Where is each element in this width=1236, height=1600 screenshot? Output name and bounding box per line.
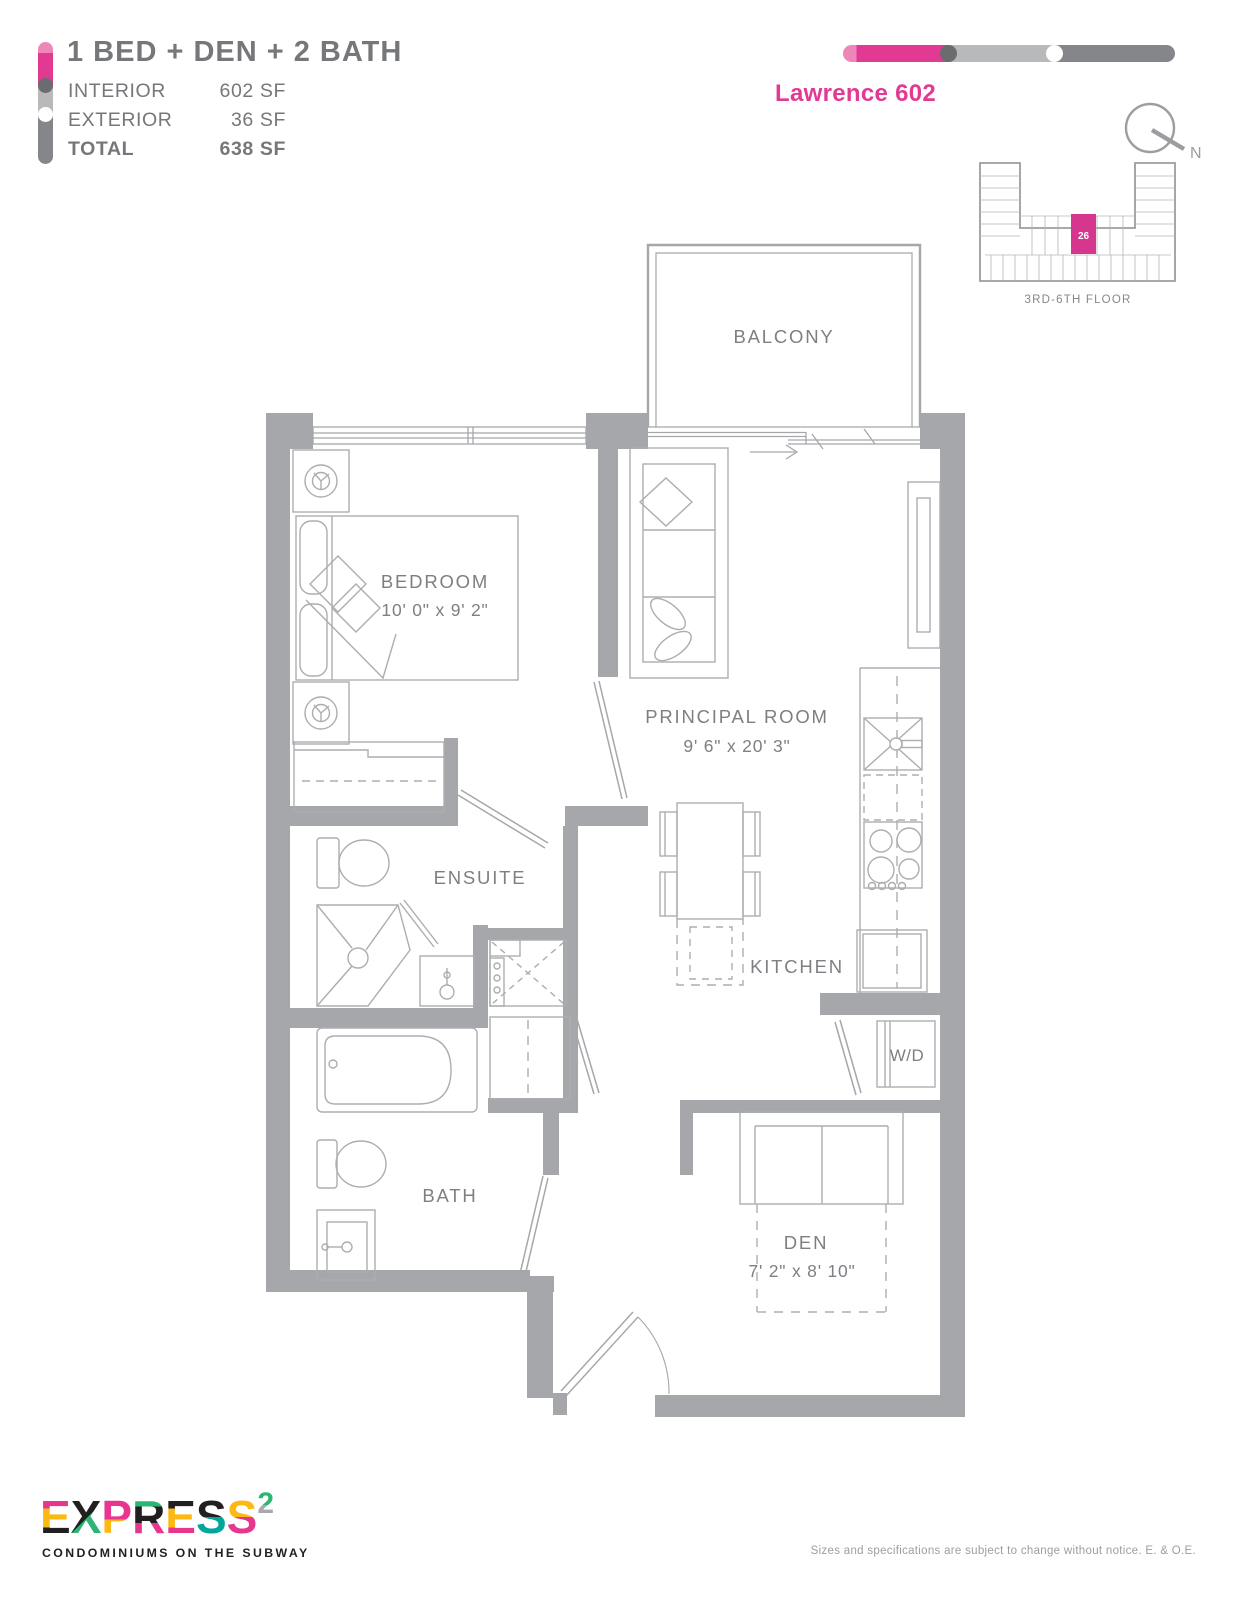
- bath-vanity: [317, 1210, 375, 1280]
- logo-letter: S: [196, 1491, 227, 1543]
- nightstand-top: [293, 450, 349, 512]
- washer-dryer-label: W/D: [890, 1046, 925, 1065]
- bed: [296, 516, 518, 680]
- logo-letter: R: [132, 1491, 165, 1543]
- logo-tagline: CONDOMINIUMS ON THE SUBWAY: [42, 1546, 310, 1560]
- express2-logo: EXPRESS2: [40, 1489, 274, 1540]
- fridge: [857, 930, 927, 992]
- entry-door: [561, 1312, 669, 1396]
- logo-letter: X: [71, 1491, 102, 1543]
- balcony-sliding-door: [648, 427, 920, 459]
- floorplan-drawing: BALCONY BEDROOM 10' 0" x 9' 2" PRINCIPAL…: [0, 0, 1236, 1600]
- den-label: DEN: [784, 1232, 828, 1253]
- floorplan-page: { "header": { "plan_type": "1 BED + DEN …: [0, 0, 1236, 1600]
- nightstand-bottom: [293, 682, 349, 744]
- bedroom-door: [594, 681, 627, 799]
- kitchen-label: KITCHEN: [750, 956, 844, 977]
- principal-room-dimensions: 9' 6" x 20' 3": [683, 736, 790, 756]
- logo-letter: P: [101, 1491, 132, 1543]
- hall-closet: [490, 1017, 570, 1099]
- bath-label: BATH: [422, 1185, 477, 1206]
- disclaimer-text: Sizes and specifications are subject to …: [811, 1545, 1196, 1557]
- sofa: [630, 448, 728, 678]
- ensuite-door: [458, 790, 548, 848]
- logo-letter: E: [40, 1491, 71, 1543]
- logo-letter: E: [165, 1491, 196, 1543]
- bath-toilet: [317, 1140, 386, 1188]
- bath-door: [519, 1176, 548, 1280]
- bedroom-dimensions: 10' 0" x 9' 2": [381, 600, 488, 620]
- bathtub: [317, 1028, 477, 1112]
- den-dimensions: 7' 2" x 8' 10": [748, 1261, 855, 1281]
- den-sofabed: [740, 1112, 903, 1312]
- bedroom-label: BEDROOM: [381, 571, 489, 592]
- kitchen-sink: [864, 718, 922, 770]
- principal-room-label: PRINCIPAL ROOM: [645, 706, 829, 727]
- logo-superscript: 2: [257, 1487, 274, 1520]
- tv-unit: [908, 482, 940, 648]
- door-slide-arrow-icon: [750, 445, 797, 459]
- dishwasher: [864, 775, 922, 820]
- washer-dryer-door: [835, 1020, 861, 1095]
- bedroom-closet: [294, 742, 444, 812]
- linen-closet: [490, 940, 566, 1006]
- balcony-label: BALCONY: [733, 326, 834, 347]
- kitchen-counter: [860, 668, 940, 993]
- ensuite-vanity: [420, 956, 474, 1006]
- cooktop: [864, 822, 922, 890]
- ensuite-label: ENSUITE: [434, 867, 527, 888]
- ensuite-toilet: [317, 838, 389, 888]
- logo-letter: S: [227, 1491, 258, 1543]
- dining-table: [660, 803, 760, 985]
- bedroom-window: [313, 427, 586, 444]
